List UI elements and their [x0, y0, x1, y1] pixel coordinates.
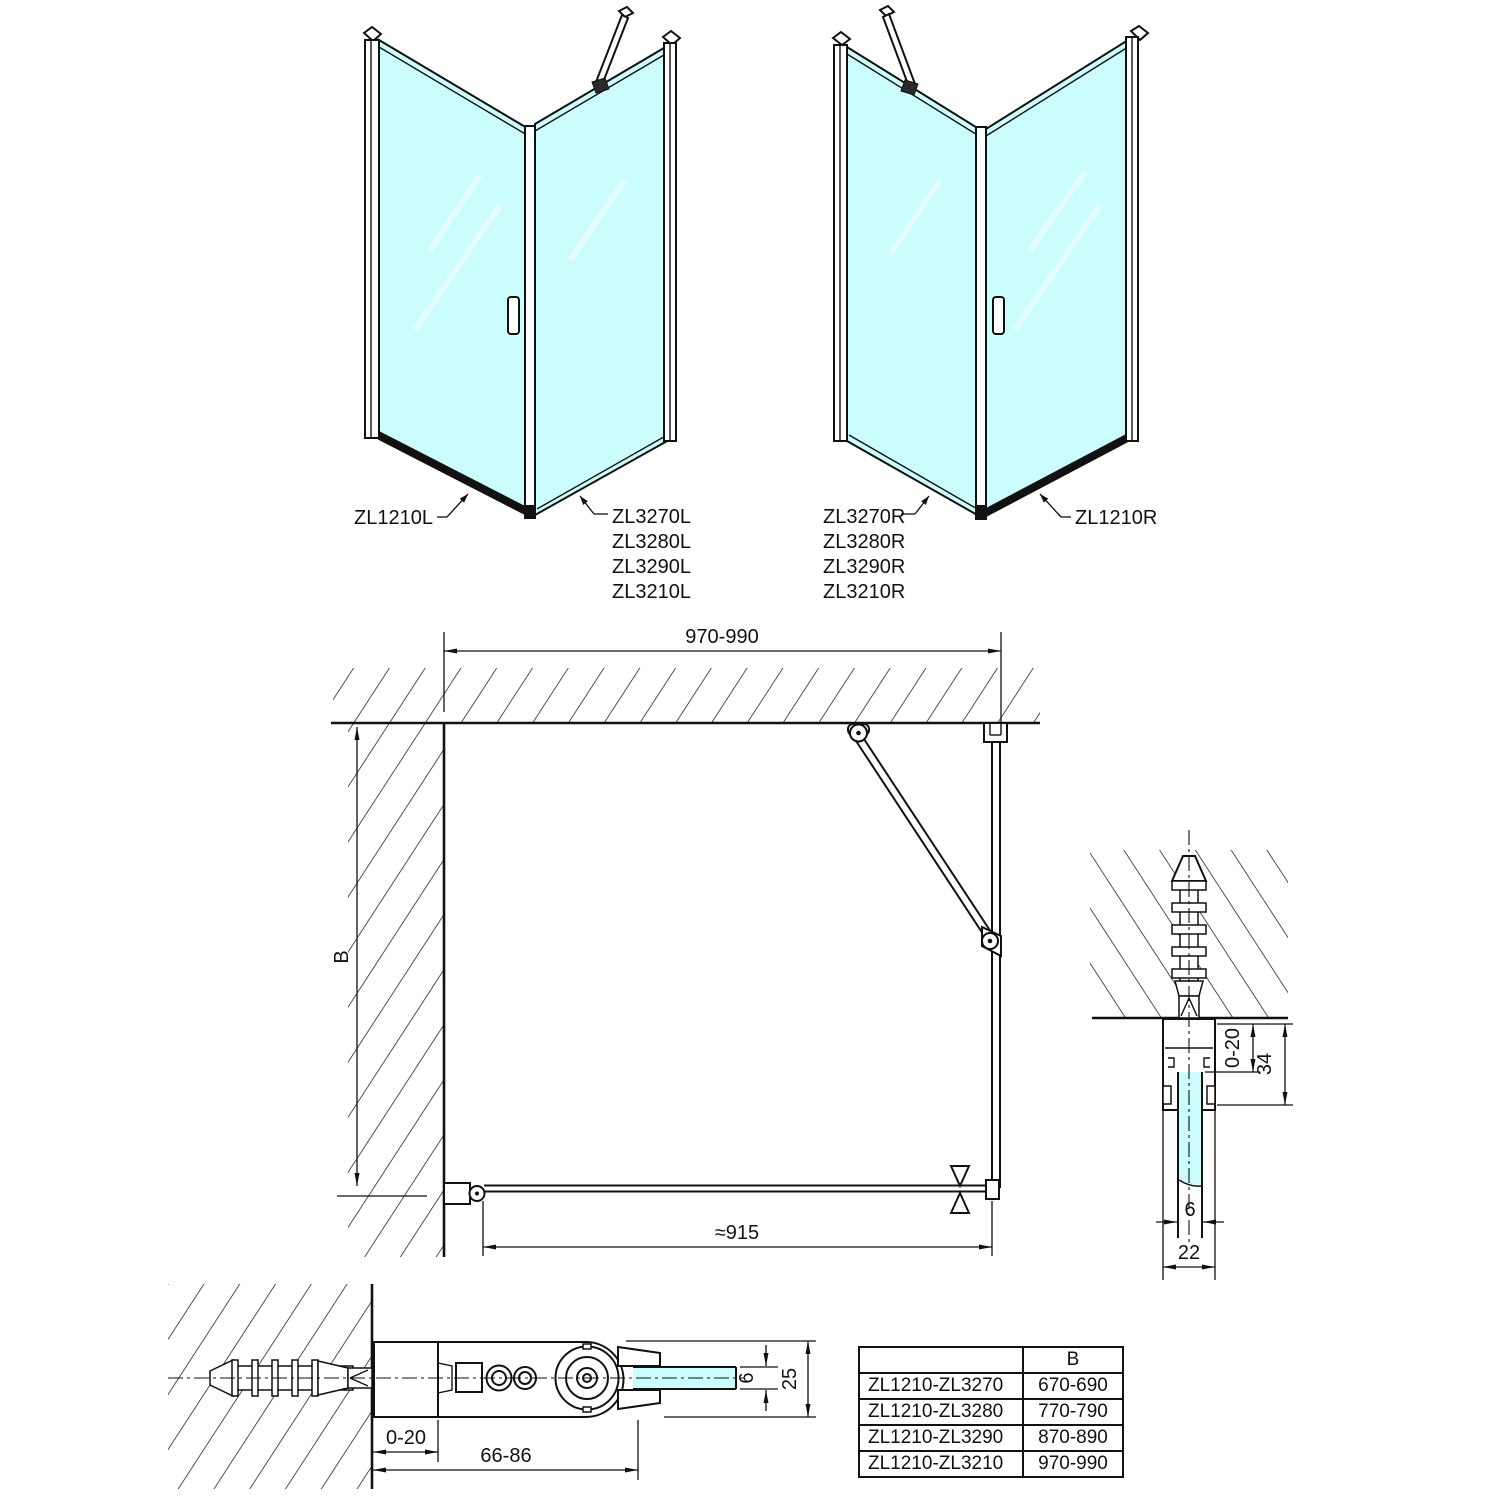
size-table-value: 870-890	[1023, 1425, 1123, 1451]
size-table-model: ZL1210-ZL3270	[859, 1373, 1023, 1399]
right-unit-3d-view: ZL3270R ZL3280R ZL3290R ZL3210R ZL1210R	[823, 6, 1157, 603]
hinge-glass-dim: 6	[736, 1372, 758, 1383]
plan-left-wall-hatch	[348, 723, 444, 1257]
plan-width-dim: 970-990	[685, 626, 758, 648]
plan-side-panel	[992, 741, 1000, 1187]
size-table-value: 970-990	[1023, 1451, 1123, 1477]
size-table-row: ZL1210-ZL3210 970-990	[859, 1451, 1123, 1477]
left-unit-3d-view: ZL1210L ZL3270L ZL3280L ZL3290L ZL3210L	[354, 7, 691, 603]
size-table-row: ZL1210-ZL3290 870-890	[859, 1425, 1123, 1451]
wall-profile-inset-dim: 0-20	[1222, 1028, 1244, 1068]
hinge-range-dim: 66-86	[480, 1445, 531, 1467]
size-table-row: ZL1210-ZL3280 770-790	[859, 1399, 1123, 1425]
plan-depth-dim: B	[331, 950, 353, 963]
hinge-detail: 0-20 66-86 6 25	[168, 1284, 816, 1489]
label-right-panel-1: ZL3280R	[823, 531, 905, 553]
size-table-header-row: B	[859, 1347, 1123, 1373]
hinge-bracket-body	[374, 1342, 624, 1417]
size-table-model: ZL1210-ZL3210	[859, 1451, 1023, 1477]
technical-drawing-page: ZL1210L ZL3270L ZL3280L ZL3290L ZL3210L	[0, 0, 1500, 1500]
wall-profile-glass-dim: 6	[1184, 1199, 1195, 1221]
plan-wall-bracket	[984, 723, 1007, 742]
hinge-height-dim: 25	[779, 1368, 801, 1390]
label-left-panel-0: ZL3270L	[612, 506, 691, 528]
plan-support-bar	[848, 724, 1001, 956]
label-left-panel-2: ZL3290L	[612, 556, 691, 578]
size-table-header-empty	[859, 1347, 1023, 1373]
size-table-model: ZL1210-ZL3290	[859, 1425, 1023, 1451]
size-table-model: ZL1210-ZL3280	[859, 1399, 1023, 1425]
size-table-value: 670-690	[1023, 1373, 1123, 1399]
plan-door-dim: ≈915	[715, 1222, 759, 1244]
left-unit-door-handle	[508, 297, 519, 334]
size-table-row: ZL1210-ZL3270 670-690	[859, 1373, 1123, 1399]
left-unit-wall-profile	[365, 40, 379, 438]
plan-door-handle	[951, 1166, 969, 1186]
right-unit-corner-post	[976, 127, 986, 519]
left-unit-corner-post	[525, 126, 535, 518]
label-left-panel-3: ZL3210L	[612, 581, 691, 603]
right-unit-side-profile-cap	[833, 32, 850, 45]
size-table: B ZL1210-ZL3270 670-690 ZL1210-ZL3280 77…	[858, 1346, 1124, 1478]
plan-view: 970-990 B	[331, 626, 1040, 1257]
plan-top-wall-hatch	[333, 668, 1040, 723]
hinge-inset-dim: 0-20	[386, 1427, 426, 1449]
wall-profile-detail: 0-20 34 6 22	[1090, 830, 1293, 1280]
label-right-panel-0: ZL3270R	[823, 506, 905, 528]
plan-hinge-block	[444, 1183, 470, 1204]
size-table-header-b: B	[1023, 1347, 1123, 1373]
size-table-value: 770-790	[1023, 1399, 1123, 1425]
label-left-door: ZL1210L	[354, 507, 433, 529]
wall-profile-width-dim: 22	[1178, 1242, 1200, 1264]
left-unit-side-panel-glass	[535, 45, 669, 515]
label-right-door: ZL1210R	[1075, 507, 1157, 529]
wall-profile-depth-dim: 34	[1254, 1053, 1276, 1075]
label-right-panel-2: ZL3290R	[823, 556, 905, 578]
plan-door-leaf	[444, 1166, 999, 1213]
drawing-canvas: ZL1210L ZL3270L ZL3280L ZL3290L ZL3210L	[0, 0, 1500, 1500]
label-right-panel-3: ZL3210R	[823, 581, 905, 603]
label-left-panel-1: ZL3280L	[612, 531, 691, 553]
right-unit-door-handle	[993, 297, 1004, 334]
